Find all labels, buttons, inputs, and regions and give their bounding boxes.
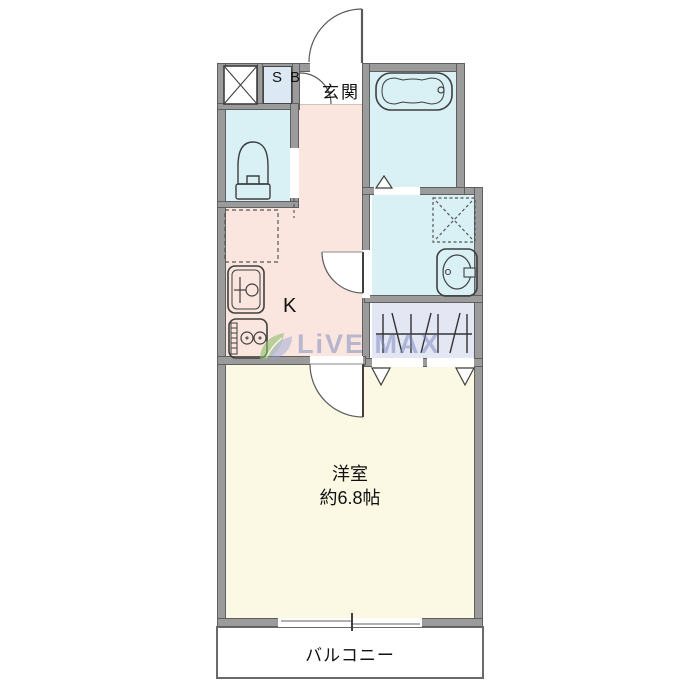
wall-segment-wash-closet-divider xyxy=(364,295,483,303)
western-room-label: 洋室 約6.8帖 xyxy=(226,462,474,510)
wall-segment-right-lower xyxy=(474,187,483,627)
sliding-window-pane-right xyxy=(352,623,420,625)
washroom-door-opening xyxy=(362,250,370,298)
sliding-window-pane-left xyxy=(281,620,351,622)
livemax-watermark-text: LiVE MAX xyxy=(297,329,441,360)
floorplan-canvas: 玄関 SB K 洋室 約6.8帖 バルコニー LiVE MAX xyxy=(0,0,700,700)
wall-segment-right-upper xyxy=(456,63,465,195)
wall-segment-left xyxy=(217,63,226,627)
entrance-label: 玄関 xyxy=(322,78,360,103)
wall-segment-sb-row-bottom xyxy=(217,103,300,110)
western-room-size: 約6.8帖 xyxy=(226,486,474,510)
shoe-box-label: SB xyxy=(263,66,292,104)
wall-segment-toilet-bottom xyxy=(217,201,299,208)
sliding-window-center-tick xyxy=(351,613,353,631)
western-room-name: 洋室 xyxy=(226,462,474,486)
toilet-door-opening xyxy=(290,148,299,198)
bathroom-door-opening xyxy=(374,187,420,195)
room-bathroom xyxy=(370,72,456,187)
wall-segment-bath-left-column xyxy=(362,63,370,365)
entrance-door-opening xyxy=(310,63,362,72)
kitchen-label: K xyxy=(283,295,296,318)
balcony-label: バルコニー xyxy=(216,641,484,666)
room-washroom xyxy=(372,195,474,295)
entrance-door-swing-icon xyxy=(309,9,362,63)
livemax-logo-leaf-icon xyxy=(258,330,298,362)
room-toilet xyxy=(226,110,290,201)
